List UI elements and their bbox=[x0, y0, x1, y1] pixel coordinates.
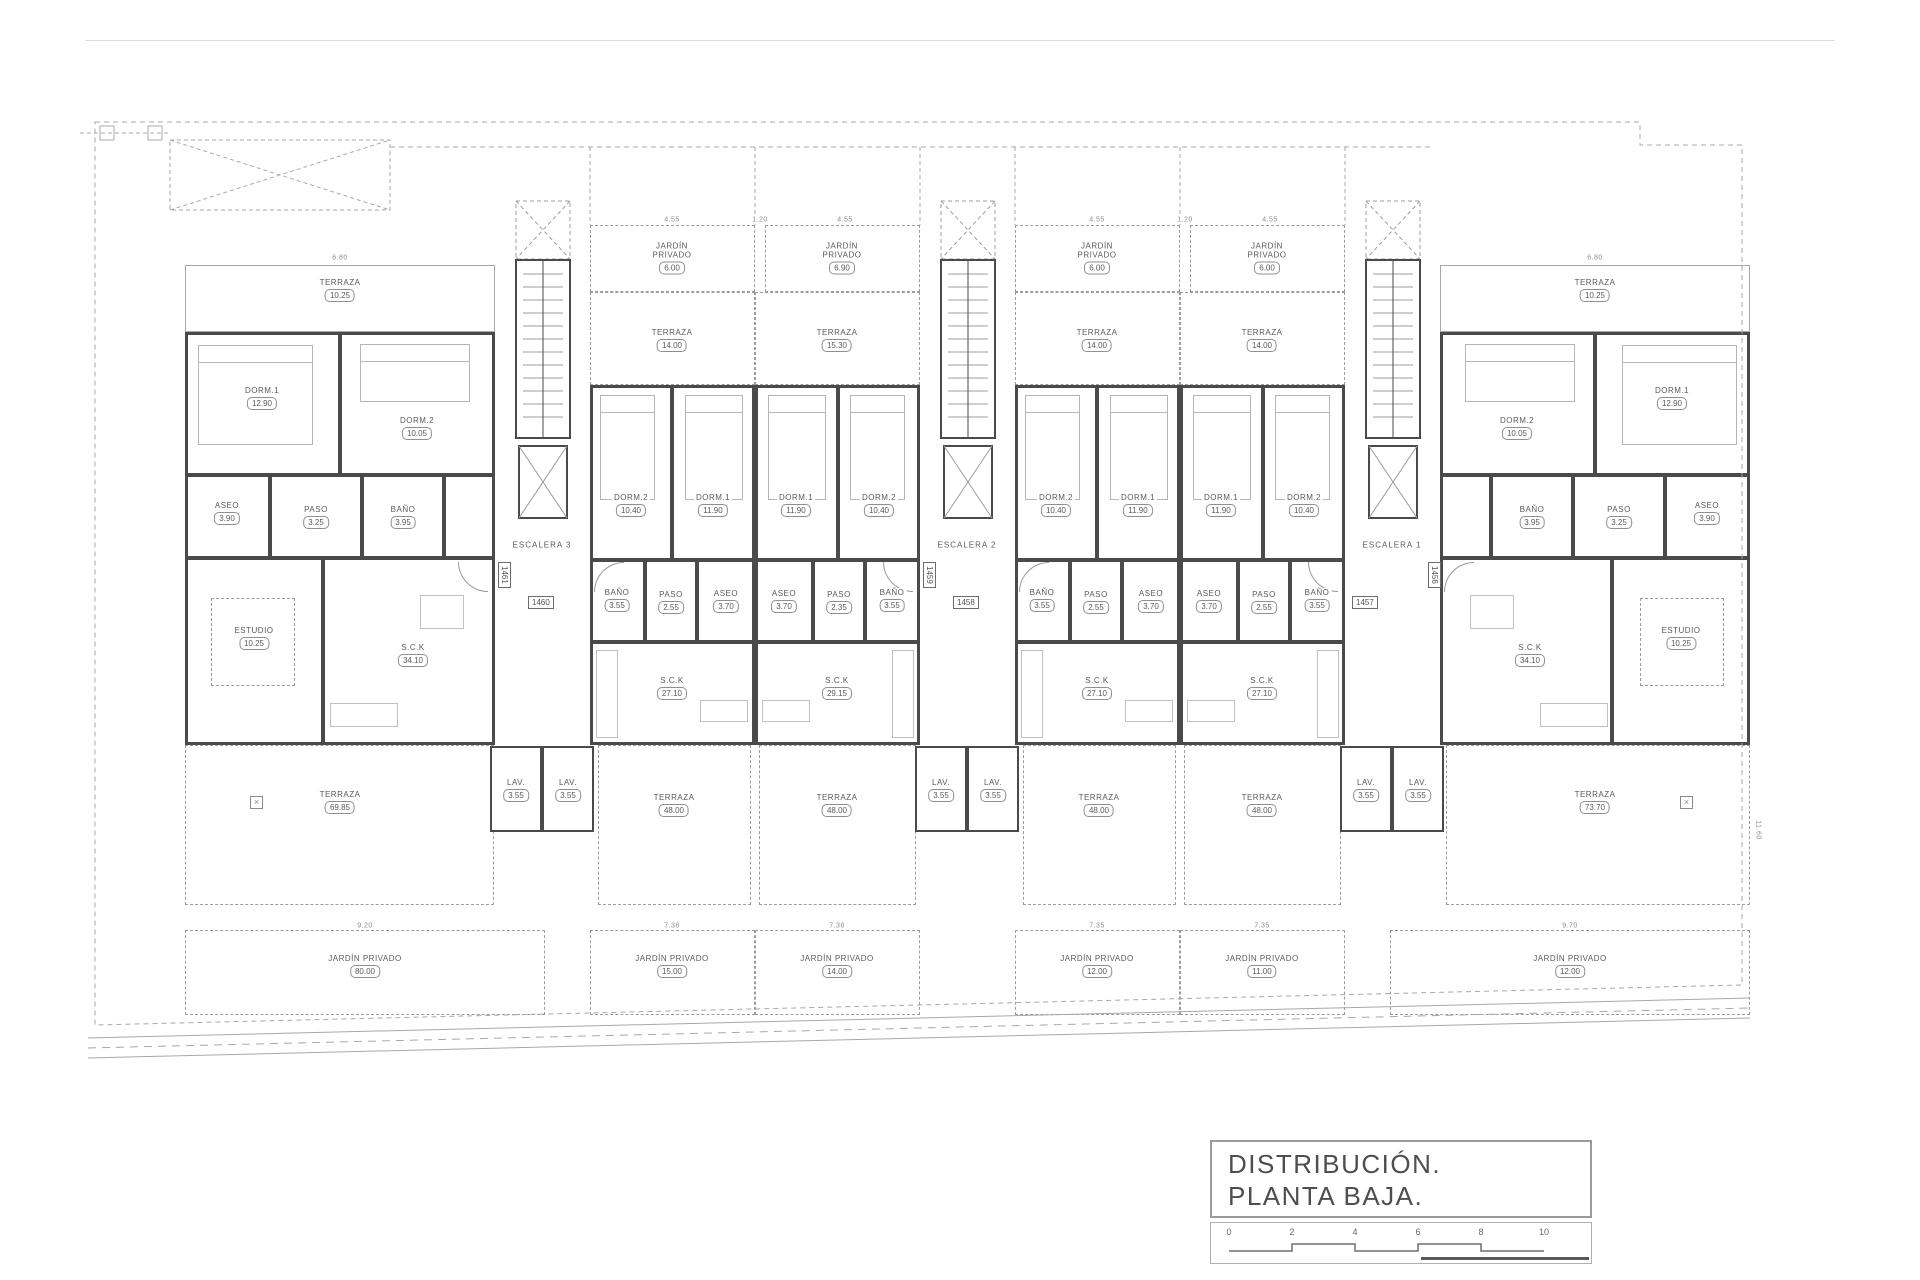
dim-gap-u4-u5: 1.20 bbox=[1175, 217, 1195, 224]
room-label-jardin-u5: JARDÍN PRIVADO 11.00 bbox=[1223, 954, 1301, 978]
room-label-terraza-low-u3: TERRAZA 48.00 bbox=[815, 793, 860, 817]
room-label-sck-u6: S.C.K 34.10 bbox=[1515, 643, 1545, 667]
room-label-dorm1-u3: DORM.1 11.90 bbox=[777, 493, 815, 517]
unit-number-badge: 1457 bbox=[1352, 596, 1378, 609]
room-label-lav: LAV. 3.55 bbox=[980, 778, 1006, 802]
unit-number-badge: 1460 bbox=[528, 596, 554, 609]
room-label-aseo-u3: ASEO 3.70 bbox=[770, 589, 798, 613]
dim-top-u2: 4.55 bbox=[662, 217, 682, 224]
room-label-jardin-top-u3: JARDÍN PRIVADO 6.90 bbox=[812, 242, 872, 275]
room-label-aseo-u2: ASEO 3.70 bbox=[712, 589, 740, 613]
dim-bottom-u2: 7.38 bbox=[662, 923, 682, 930]
room-label-dorm1-u1: DORM.1 12.90 bbox=[243, 386, 281, 410]
room-label-bano-u3: BAÑO 3.55 bbox=[878, 588, 907, 612]
room-label-terraza-top-u2: TERRAZA 14.00 bbox=[650, 328, 695, 352]
room-label-bano-u1: BAÑO 3.95 bbox=[389, 505, 418, 529]
sheet-title-line2: PLANTA BAJA. bbox=[1228, 1180, 1590, 1212]
room-label-paso-u2: PASO 2.55 bbox=[657, 590, 685, 614]
stair-core-3 bbox=[515, 200, 571, 524]
stair-core-2 bbox=[940, 200, 996, 524]
room-label-terraza-low-u2: TERRAZA 48.00 bbox=[652, 793, 697, 817]
room-label-lav: LAV. 3.55 bbox=[1405, 778, 1431, 802]
room-label-terraza-low-u5: TERRAZA 48.00 bbox=[1240, 793, 1285, 817]
room-label-jardin-top-u2: JARDÍN PRIVADO 6.00 bbox=[642, 242, 702, 275]
room-label-dorm2-u4: DORM.2 10.40 bbox=[1037, 493, 1075, 517]
stair-core-1 bbox=[1365, 200, 1421, 524]
room-label-aseo-u1: ASEO 3.90 bbox=[213, 501, 241, 525]
room-label-lav: LAV. 3.55 bbox=[555, 778, 581, 802]
room-label-dorm2-u1: DORM.2 10.05 bbox=[398, 416, 436, 440]
dim-top-u5: 4.55 bbox=[1260, 217, 1280, 224]
unit-number-badge: 1458 bbox=[953, 596, 979, 609]
room-label-terraza-low-u4: TERRAZA 48.00 bbox=[1077, 793, 1122, 817]
room-label-jardin-top-u4: JARDÍN PRIVADO 6.00 bbox=[1067, 242, 1127, 275]
room-label-dorm2-u6: DORM.2 10.05 bbox=[1498, 416, 1536, 440]
sheet-title-line1: DISTRIBUCIÓN. bbox=[1228, 1148, 1590, 1180]
room-label-terraza-top-u3: TERRAZA 15.30 bbox=[815, 328, 860, 352]
room-label-terraza-top-u6: TERRAZA 10.25 bbox=[1573, 278, 1618, 302]
unit-number-badge: 1461 bbox=[498, 562, 511, 588]
room-label-lav: LAV. 3.55 bbox=[928, 778, 954, 802]
room-label-dorm2-u2: DORM.2 10.40 bbox=[612, 493, 650, 517]
room-label-sck-u4: S.C.K 27.10 bbox=[1082, 676, 1112, 700]
dim-bottom-u4: 7.35 bbox=[1087, 923, 1107, 930]
room-label-lav: LAV. 3.55 bbox=[503, 778, 529, 802]
room-label-sck-u3: S.C.K 29.15 bbox=[822, 676, 852, 700]
room-label-jardin-top-u5: JARDÍN PRIVADO 6.00 bbox=[1237, 242, 1297, 275]
dim-bottom-u1: 9.20 bbox=[355, 923, 375, 930]
room-label-paso-u6: PASO 3.25 bbox=[1605, 505, 1633, 529]
room-label-aseo-u6: ASEO 3.90 bbox=[1693, 501, 1721, 525]
room-label-bano-u2: BAÑO 3.55 bbox=[603, 588, 632, 612]
room-label-sck-u1: S.C.K 34.10 bbox=[398, 643, 428, 667]
room-label-terraza-top-u1: TERRAZA 10.25 bbox=[318, 278, 363, 302]
room-label-dorm1-u6: DORM.1 12.90 bbox=[1653, 386, 1691, 410]
room-label-dorm1-u4: DORM.1 11.90 bbox=[1119, 493, 1157, 517]
room-label-jardin-u6: JARDÍN PRIVADO 12.00 bbox=[1531, 954, 1609, 978]
dim-side-right: 11.60 bbox=[1755, 820, 1762, 840]
room-label-bano-u4: BAÑO 3.55 bbox=[1028, 588, 1057, 612]
room-label-estudio-u1: ESTUDIO 10.25 bbox=[232, 626, 275, 650]
title-block: DISTRIBUCIÓN. PLANTA BAJA. bbox=[1210, 1140, 1592, 1218]
stair-label-escalera-3: ESCALERA 3 bbox=[511, 541, 574, 550]
room-label-jardin-u4: JARDÍN PRIVADO 12.00 bbox=[1058, 954, 1136, 978]
dim-top-u6: 6.80 bbox=[1585, 255, 1605, 262]
room-label-dorm2-u3: DORM.2 10.40 bbox=[860, 493, 898, 517]
room-label-terraza-top-u4: TERRAZA 14.00 bbox=[1075, 328, 1120, 352]
room-label-paso-u4: PASO 2.55 bbox=[1082, 590, 1110, 614]
room-label-jardin-u3: JARDÍN PRIVADO 14.00 bbox=[798, 954, 876, 978]
site-boundary-lines bbox=[0, 0, 1920, 1280]
dim-gap-u2-u3: 1.20 bbox=[750, 217, 770, 224]
room-label-sck-u2: S.C.K 27.10 bbox=[657, 676, 687, 700]
room-label-estudio-u6: ESTUDIO 10.25 bbox=[1659, 626, 1702, 650]
room-label-jardin-u2: JARDÍN PRIVADO 15.00 bbox=[633, 954, 711, 978]
room-label-bano-u5: BAÑO 3.55 bbox=[1303, 588, 1332, 612]
room-label-paso-u3: PASO 2.35 bbox=[825, 590, 853, 614]
dim-top-u3: 4.55 bbox=[835, 217, 855, 224]
room-label-dorm1-u2: DORM.1 11.90 bbox=[694, 493, 732, 517]
room-label-aseo-u5: ASEO 3.70 bbox=[1195, 589, 1223, 613]
dim-bottom-u3: 7.38 bbox=[827, 923, 847, 930]
room-label-terraza-low-u1: TERRAZA 69.85 bbox=[318, 790, 363, 814]
scale-bar-steps bbox=[1211, 1223, 1591, 1263]
stair-label-escalera-2: ESCALERA 2 bbox=[936, 541, 999, 550]
scale-bar: 0 2 4 6 8 10 bbox=[1210, 1222, 1592, 1264]
room-label-sck-u5: S.C.K 27.10 bbox=[1247, 676, 1277, 700]
dim-top-u4: 4.55 bbox=[1087, 217, 1107, 224]
room-label-bano-u6: BAÑO 3.95 bbox=[1518, 505, 1547, 529]
unit-number-badge: 1459 bbox=[923, 562, 936, 588]
room-label-paso-u5: PASO 2.55 bbox=[1250, 590, 1278, 614]
drawing-sheet: 6.80 TERRAZA 10.25 DORM.1 12.90 DORM.2 1… bbox=[0, 0, 1920, 1280]
room-label-dorm1-u5: DORM.1 11.90 bbox=[1202, 493, 1240, 517]
stair-label-escalera-1: ESCALERA 1 bbox=[1361, 541, 1424, 550]
dim-top-u1: 6.80 bbox=[330, 255, 350, 262]
dim-bottom-u6: 9.70 bbox=[1560, 923, 1580, 930]
room-label-lav: LAV. 3.55 bbox=[1353, 778, 1379, 802]
room-label-dorm2-u5: DORM.2 10.40 bbox=[1285, 493, 1323, 517]
room-label-jardin-u1: JARDÍN PRIVADO 80.00 bbox=[326, 954, 404, 978]
dim-bottom-u5: 7.35 bbox=[1252, 923, 1272, 930]
room-label-paso-u1: PASO 3.25 bbox=[302, 505, 330, 529]
room-label-aseo-u4: ASEO 3.70 bbox=[1137, 589, 1165, 613]
unit-number-badge: 1456 bbox=[1428, 562, 1441, 588]
room-label-terraza-low-u6: TERRAZA 73.70 bbox=[1573, 790, 1618, 814]
room-label-terraza-top-u5: TERRAZA 14.00 bbox=[1240, 328, 1285, 352]
